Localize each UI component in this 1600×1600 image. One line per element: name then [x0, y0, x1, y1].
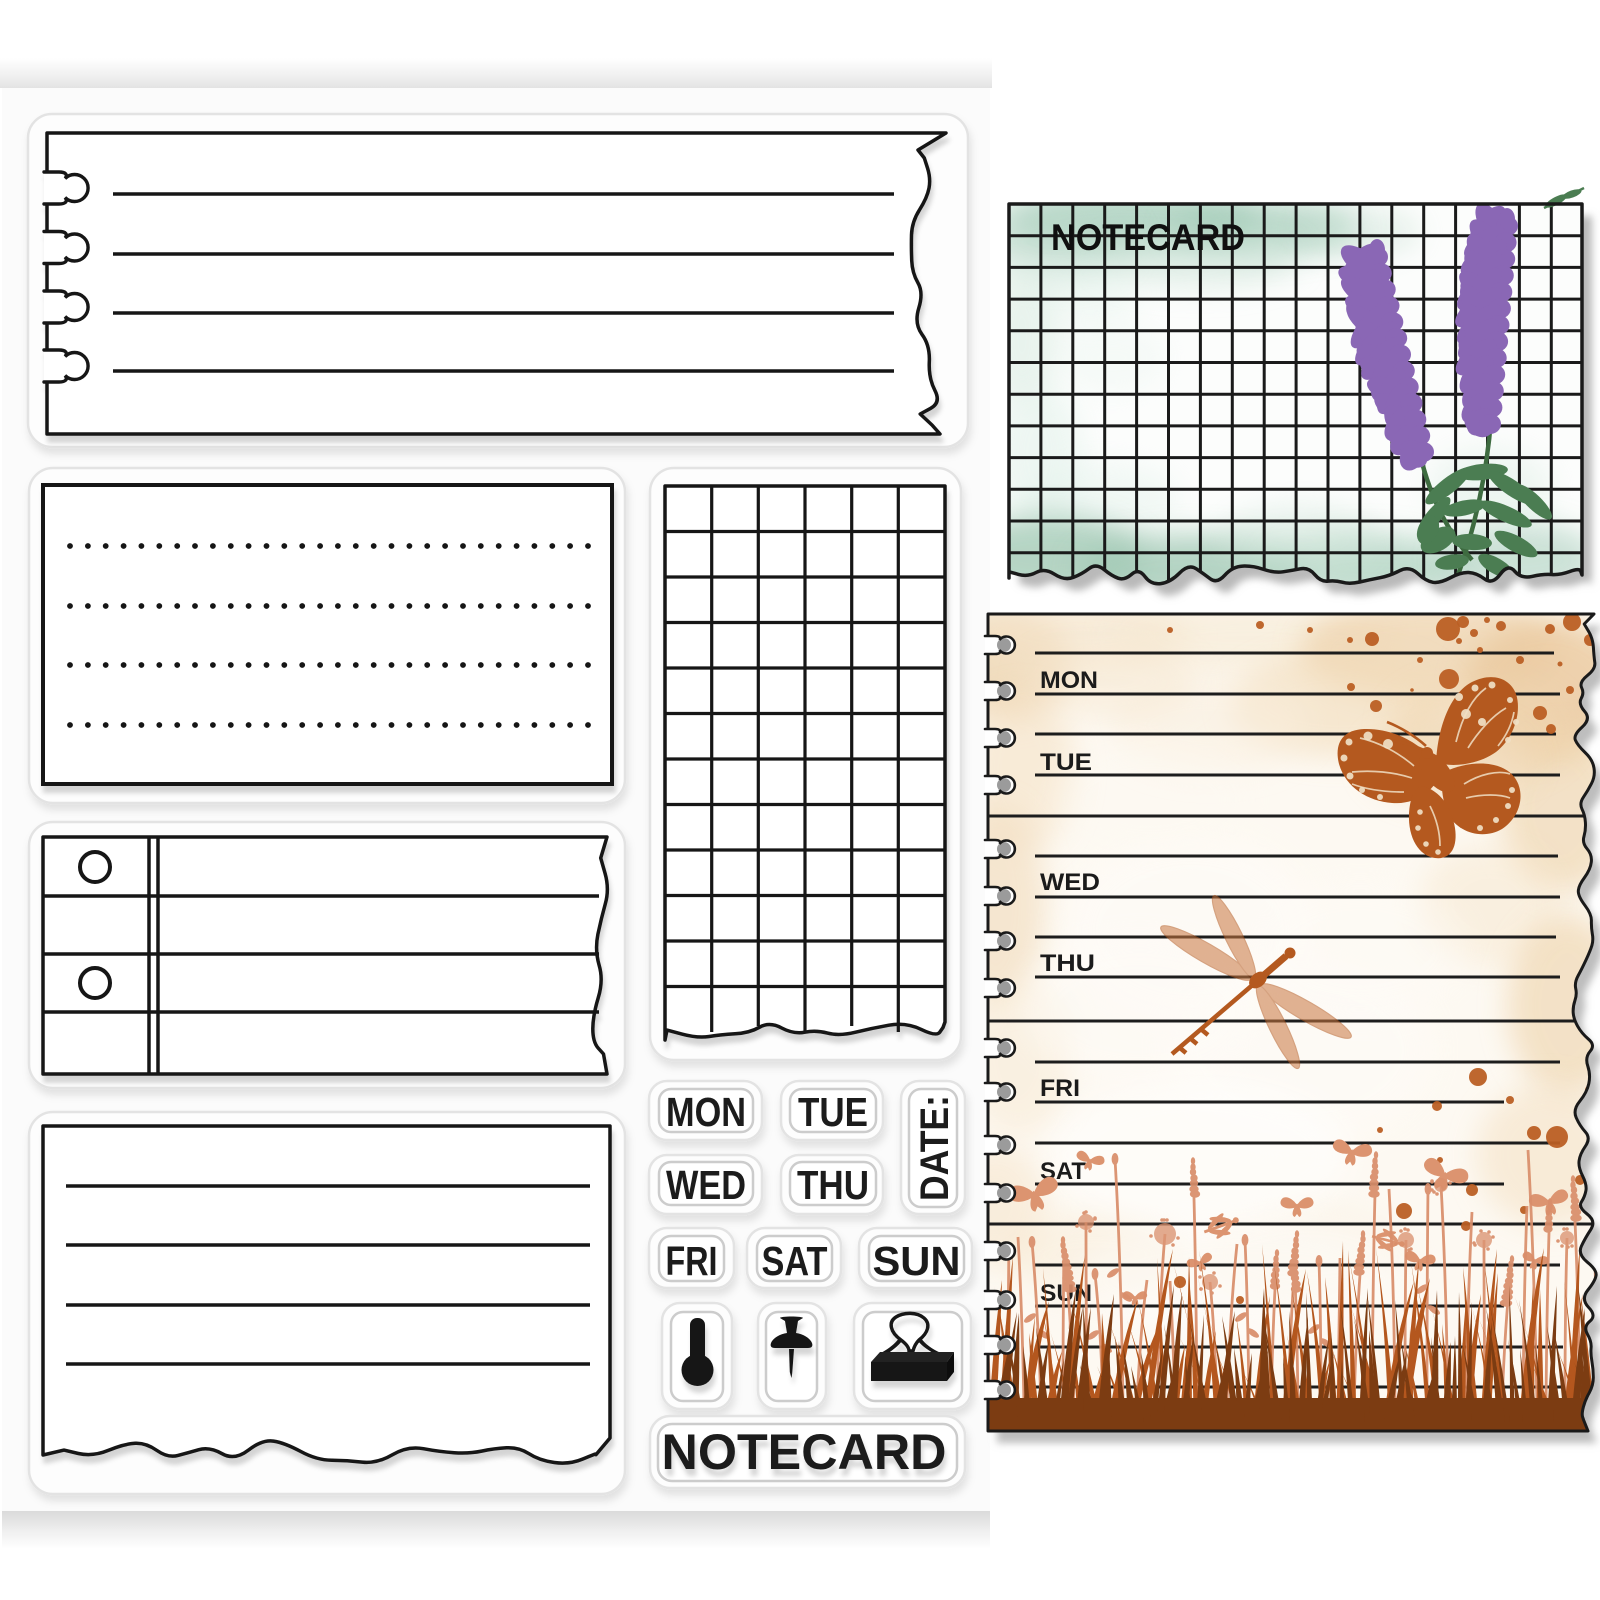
svg-text:FRI: FRI: [666, 1238, 718, 1284]
svg-text:NOTECARD: NOTECARD: [662, 1424, 947, 1480]
svg-text:TUE: TUE: [1040, 749, 1092, 776]
svg-text:MON: MON: [666, 1089, 746, 1135]
svg-text:THU: THU: [797, 1162, 869, 1208]
svg-text:THU: THU: [1040, 950, 1095, 977]
svg-text:WED: WED: [1040, 869, 1100, 896]
svg-text:FRI: FRI: [1040, 1075, 1080, 1102]
svg-text:SUN: SUN: [873, 1238, 961, 1284]
svg-text:TUE: TUE: [798, 1089, 868, 1135]
svg-text:MON: MON: [1040, 667, 1098, 694]
svg-text:NOTECARD: NOTECARD: [1051, 217, 1245, 258]
svg-text:WED: WED: [666, 1162, 746, 1208]
svg-text:SAT: SAT: [762, 1238, 828, 1284]
svg-text:DATE:: DATE:: [913, 1095, 957, 1201]
